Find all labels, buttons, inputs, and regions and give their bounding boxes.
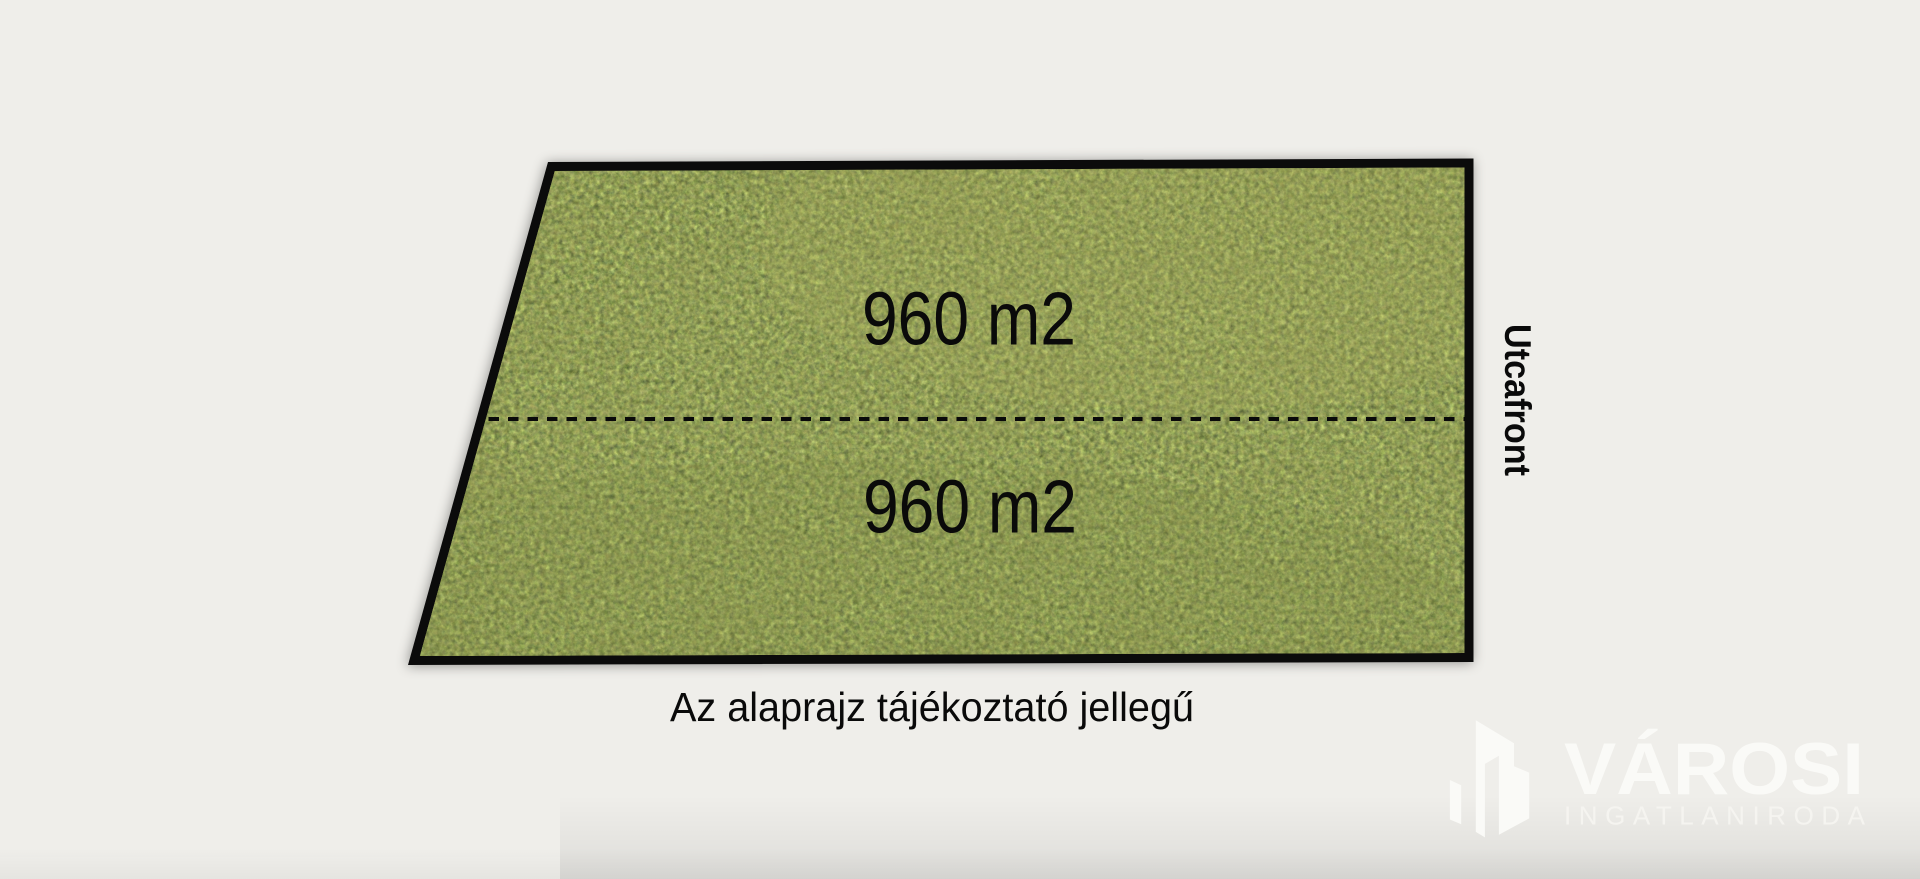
svg-text:Az alaprajz tájékoztató jelleg: Az alaprajz tájékoztató jellegű bbox=[670, 684, 1194, 730]
svg-text:960 m2: 960 m2 bbox=[863, 465, 1077, 549]
svg-text:960 m2: 960 m2 bbox=[862, 277, 1076, 361]
svg-text:VÁROSI: VÁROSI bbox=[1564, 729, 1864, 810]
svg-text:Utcafront: Utcafront bbox=[1497, 324, 1538, 476]
svg-text:INGATLANIRODA: INGATLANIRODA bbox=[1564, 801, 1866, 831]
